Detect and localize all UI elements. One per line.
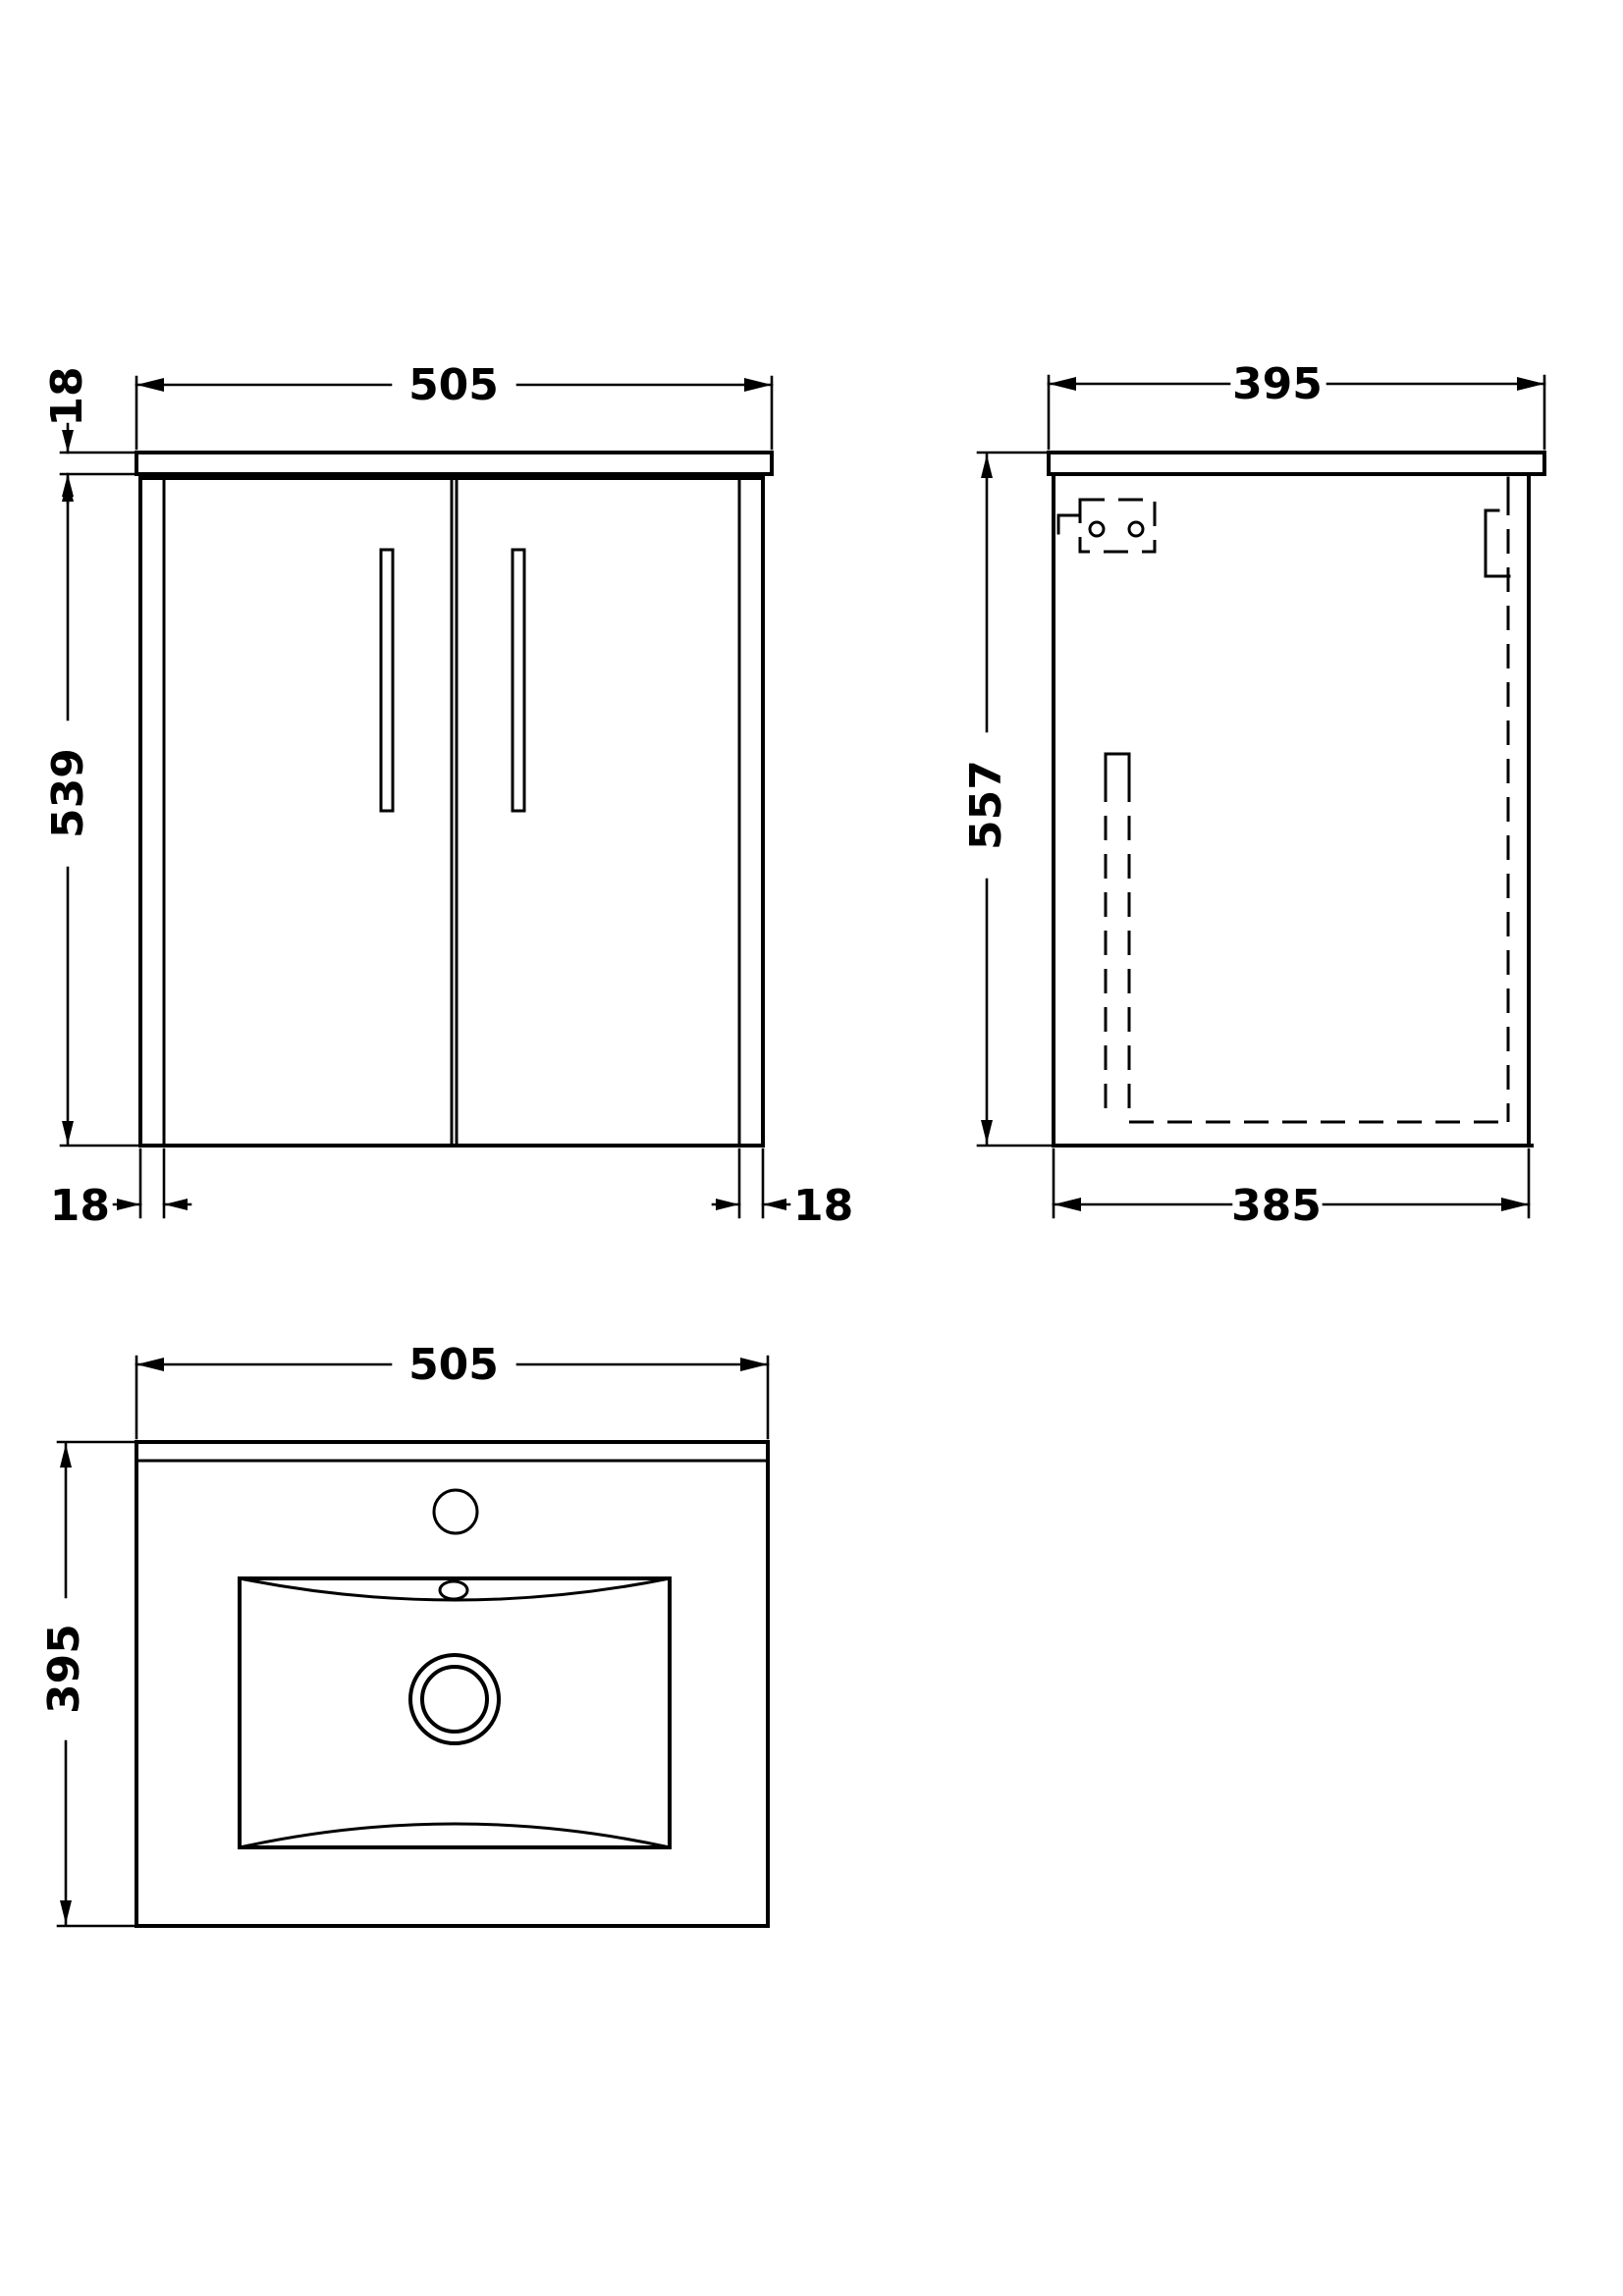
side-worktop [1049, 453, 1544, 474]
dim-front-width: 505 [136, 360, 772, 449]
front-right-door-handle [513, 550, 524, 811]
side-bracket-hook [1058, 515, 1080, 533]
dim-side-cabinet-depth: 385 [1054, 1149, 1529, 1231]
plan-tap-hole [434, 1490, 477, 1533]
dim-front-cabinet-height: 539 [43, 478, 140, 1146]
front-door-gap [452, 481, 457, 1146]
front-view: 505 18 539 18 [42, 360, 853, 1231]
plan-view: 505 395 [39, 1340, 768, 1926]
dim-side-cabinet-depth-label: 385 [1231, 1181, 1322, 1231]
plan-basin-outline [136, 1442, 768, 1926]
technical-drawing-page: 505 18 539 18 [0, 0, 1623, 2296]
dim-front-width-label: 505 [408, 360, 499, 410]
dim-side-depth-label: 395 [1232, 359, 1323, 409]
plan-bowl-rim [240, 1578, 670, 1847]
dim-plan-depth-label: 395 [39, 1624, 89, 1714]
dim-front-left-panel-label: 18 [50, 1181, 110, 1231]
plan-basin-bowl [240, 1578, 670, 1847]
front-left-door-handle [381, 550, 393, 811]
plan-bowl-front-curve [240, 1824, 670, 1847]
vanity-unit-drawing: 505 18 539 18 [0, 0, 1623, 2296]
dim-front-right-panel-label: 18 [793, 1181, 853, 1231]
side-hidden-runner [1106, 754, 1129, 1122]
dim-front-left-panel: 18 [50, 1149, 190, 1231]
side-hanger-bracket [1486, 510, 1509, 576]
dim-side-depth: 395 [1049, 359, 1544, 449]
dim-front-worktop-thickness: 18 [42, 366, 149, 503]
side-view: 395 557 385 [961, 359, 1544, 1231]
dim-side-height: 557 [961, 453, 1054, 1146]
dim-plan-width-label: 505 [408, 1340, 499, 1390]
dim-front-worktop-thickness-label: 18 [42, 366, 92, 426]
dim-plan-width: 505 [136, 1340, 768, 1438]
side-wall-bracket [1058, 500, 1155, 552]
dim-side-height-label: 557 [961, 760, 1011, 850]
dim-front-cabinet-height-label: 539 [43, 748, 93, 838]
side-bracket-screw-hole-2 [1129, 522, 1143, 536]
dim-front-right-panel: 18 [713, 1149, 853, 1231]
front-worktop [136, 453, 772, 474]
side-bracket-screw-hole-1 [1090, 522, 1104, 536]
plan-waste-inner [422, 1667, 487, 1732]
plan-overflow-hole [440, 1581, 467, 1599]
dim-plan-depth: 395 [39, 1442, 136, 1926]
